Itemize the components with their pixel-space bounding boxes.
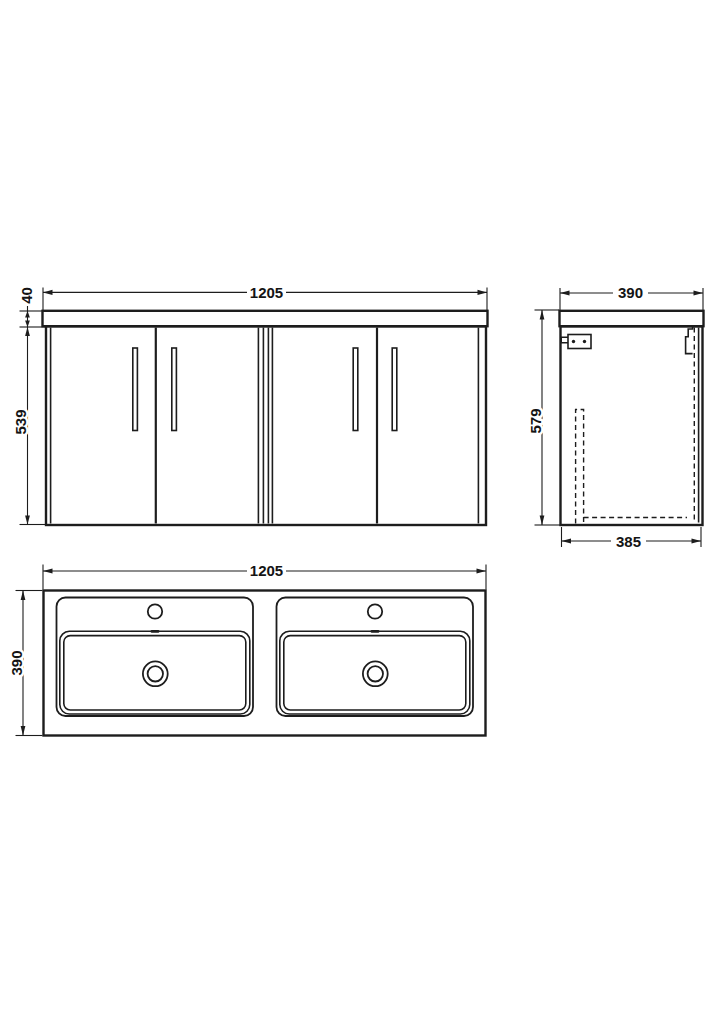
arrowhead-icon [25, 516, 30, 525]
bracket-screw-hole-icon [572, 340, 575, 343]
arrowhead-icon [692, 538, 702, 543]
dim-side-cabinet-depth: 385 [562, 527, 702, 550]
door-handle-icon [353, 348, 358, 431]
arrowhead-icon [540, 310, 545, 320]
arrowhead-icon [25, 311, 30, 318]
dim-cabinet-height: 539 [12, 327, 46, 525]
wall-bracket [568, 335, 591, 349]
dim-label-side-depth: 390 [618, 284, 643, 301]
arrowhead-icon [21, 726, 26, 736]
arrowhead-icon [25, 321, 30, 328]
dim-label-plan-width: 1205 [250, 562, 283, 579]
technical-drawing-canvas: 1205 40 539 [0, 0, 724, 1024]
basin-left [57, 598, 254, 717]
dim-label-worktop-thickness: 40 [18, 287, 35, 304]
dim-side-overall-depth: 390 [560, 284, 703, 310]
cabinet-front [46, 327, 486, 526]
dim-label-plan-depth: 390 [8, 650, 25, 675]
side-elevation-view: 390 579 [527, 284, 704, 549]
door-handle-icon [392, 348, 397, 431]
arrowhead-icon [477, 568, 487, 573]
door-handle-icon [172, 348, 177, 431]
dim-front-overall-width: 1205 [43, 284, 487, 310]
arrowhead-icon [25, 327, 30, 336]
dim-label-side-cabinet-depth: 385 [616, 533, 641, 550]
dim-label-front-width: 1205 [250, 284, 283, 301]
worktop-front [43, 311, 488, 326]
plan-view: 1205 390 [8, 562, 487, 735]
dim-plan-overall-depth: 390 [8, 591, 43, 736]
cabinet-side [561, 327, 703, 526]
door-handle-icon [133, 348, 138, 431]
front-elevation-view: 1205 40 539 [12, 284, 488, 525]
worktop-side [560, 311, 704, 326]
dim-label-side-height: 579 [527, 408, 544, 433]
arrowhead-icon [43, 568, 53, 573]
arrowhead-icon [540, 516, 545, 526]
arrowhead-icon [21, 591, 26, 601]
arrowhead-icon [694, 290, 704, 295]
basin-right [277, 598, 474, 717]
dim-side-overall-height: 579 [527, 310, 561, 525]
arrowhead-icon [43, 290, 53, 295]
bracket-screw-hole-icon [583, 340, 586, 343]
arrowhead-icon [562, 538, 572, 543]
dim-plan-overall-width: 1205 [43, 562, 486, 589]
dim-label-cabinet-height: 539 [12, 409, 29, 434]
arrowhead-icon [478, 290, 488, 295]
arrowhead-icon [560, 290, 570, 295]
